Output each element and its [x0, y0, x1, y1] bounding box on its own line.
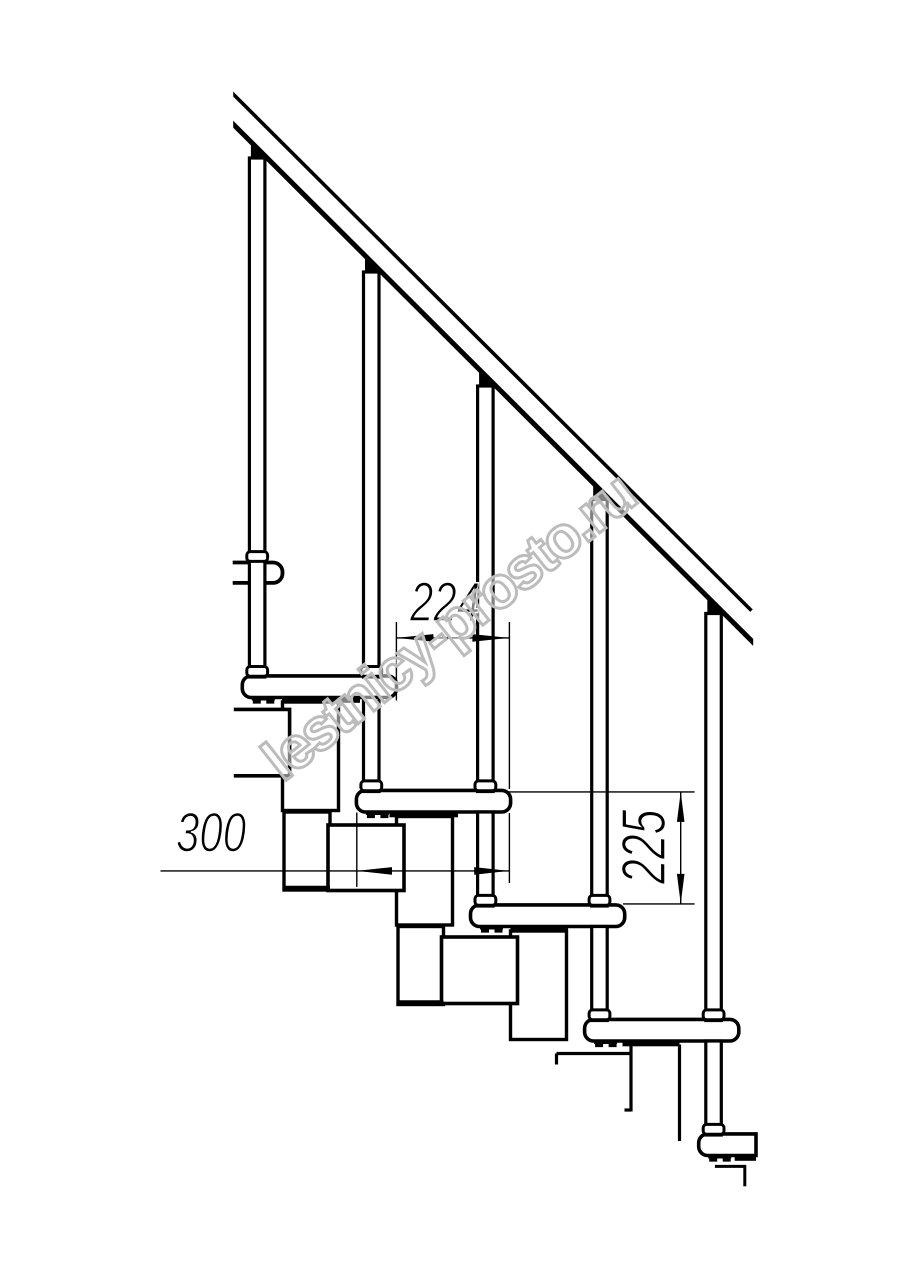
svg-text:225: 225 — [610, 809, 679, 885]
svg-text:300: 300 — [176, 802, 246, 864]
